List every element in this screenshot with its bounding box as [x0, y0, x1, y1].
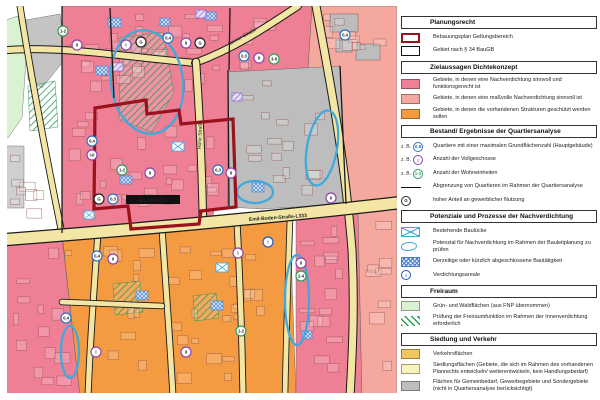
badge-grz-value: 0,4	[63, 316, 69, 321]
badge-floors-value: I	[95, 350, 96, 355]
badge-grz-value: 0,3	[241, 54, 247, 59]
badge-floors-value: II	[112, 257, 114, 262]
legend-item-label: Anzahl der Wohneinheiten	[431, 170, 497, 177]
legend-item-label: Prüfung der Freiraumfunktion im Rahmen d…	[431, 314, 597, 328]
swatch-badge-grz: 0,8	[413, 142, 423, 152]
legend-section-header: Planungsrecht	[401, 16, 597, 29]
swatch-xrect	[401, 227, 420, 237]
legend-swatch-cell	[401, 46, 431, 56]
legend-section-header: Potenziale und Prozesse der Nachverdicht…	[401, 210, 597, 223]
zoning-map: Hauptstraße Berner Straße Hohe Straße Em…	[0, 0, 397, 400]
legend-swatch-cell	[401, 349, 431, 359]
badge-commercial-value: G	[198, 41, 201, 46]
swatch-badge-units: 1-2	[413, 169, 423, 179]
swatch-zone_protect	[401, 109, 420, 119]
legend-swatch-cell	[401, 257, 431, 267]
legend-item: Ghoher Anteil an gewerblicher Nutzung	[401, 195, 597, 206]
example-prefix: z. B.	[401, 144, 411, 150]
legend-item: Bestehende Baulücke	[401, 226, 597, 237]
badge-floors-value: II	[330, 196, 332, 201]
swatch-badge-floors: I	[413, 155, 423, 165]
legend-item-label: Verkehrsflächen	[431, 351, 472, 358]
legend-item: z. B.0,8Quartiere mit einer maximalen Gr…	[401, 141, 597, 152]
legend-swatch-cell	[401, 33, 431, 43]
badge-floors-value: II	[149, 171, 151, 176]
plan-document: Hauptstraße Berner Straße Hohe Straße Em…	[0, 0, 600, 400]
legend-swatch-cell	[401, 227, 431, 237]
swatch-traffic	[401, 349, 420, 359]
swatch-line	[401, 187, 421, 188]
badge-units-value: 3-6	[271, 57, 278, 62]
legend-item-label: Gebiete, in denen eine Nachverdichtung s…	[431, 77, 597, 91]
legend-item: Gebiete, in denen eine maßvolle Nachverd…	[401, 93, 597, 104]
legend-swatch-cell: !	[401, 270, 431, 280]
legend-item: Flächen für Gemeinbedarf, Gewerbegebiete…	[401, 379, 597, 393]
legend-item: Derzeitige oder kürzlich abgeschlossene …	[401, 256, 597, 267]
street-banner-label: Hauptstraße	[138, 198, 168, 204]
legend-item: Gebiete, in denen die vorhandenen Strukt…	[401, 107, 597, 121]
legend-item-label: Verdichtungsareale	[431, 272, 480, 279]
legend-item: Potenzial für Nachverdichtung im Rahmen …	[401, 240, 597, 254]
legend-swatch-cell	[401, 187, 431, 188]
legend-item: Gebiete, in denen eine Nachverdichtung s…	[401, 77, 597, 91]
legend-item-label: Bestehende Baulücke	[431, 228, 487, 235]
legend-swatch-cell	[401, 381, 431, 391]
legend-swatch-cell	[401, 242, 431, 251]
swatch-zone_moderate	[401, 94, 420, 104]
legend-section-header: Zielaussagen Dichtekonzept	[401, 61, 597, 74]
legend-item-label: Abgrenzung von Quartieren im Rahmen der …	[431, 183, 583, 190]
legend-item: Prüfung der Freiraumfunktion im Rahmen d…	[401, 314, 597, 328]
legend-item-label: Anzahl der Vollgeschosse	[431, 156, 496, 163]
swatch-zone_strong	[401, 79, 420, 89]
legend-swatch-cell: G	[401, 196, 431, 206]
swatch-par34	[401, 46, 420, 56]
example-prefix: z. B.	[401, 171, 411, 177]
swatch-hatchblue	[401, 257, 420, 267]
legend-swatch-cell: z. B.0,8	[401, 142, 431, 152]
legend-item-label: Flächen für Gemeinbedarf, Gewerbegebiete…	[431, 379, 597, 393]
legend-item-label: Gebiete, in denen eine maßvolle Nachverd…	[431, 95, 582, 102]
badge-units-value: 2-4	[298, 274, 305, 279]
badge-floors-value: I-II	[90, 153, 95, 158]
example-prefix: z. B.	[401, 157, 411, 163]
legend-swatch-cell	[401, 364, 431, 374]
legend-swatch-cell	[401, 301, 431, 311]
badge-floors-value: II	[300, 261, 302, 266]
badge-floors-value: II	[258, 56, 260, 61]
legend-section-header: Bestand/ Ergebnisse der Quartiersanalyse	[401, 125, 597, 138]
legend-item-label: Derzeitige oder kürzlich abgeschlossene …	[431, 258, 562, 265]
swatch-hatchgreen	[401, 316, 420, 326]
badge-floors-value: II	[76, 43, 78, 48]
swatch-green	[401, 301, 420, 311]
swatch-special	[401, 381, 420, 391]
badge-grz-value: 0,3	[215, 168, 221, 173]
badge-units-value: 1-2	[238, 329, 245, 334]
legend-item-label: Potenzial für Nachverdichtung im Rahmen …	[431, 240, 597, 254]
legend-item-label: Gebiete, in denen die vorhandenen Strukt…	[431, 107, 597, 121]
badge-commercial-value: G	[97, 197, 100, 202]
badge-floors-value: I	[125, 43, 126, 48]
swatch-badge-alert: !	[401, 270, 411, 280]
legend-item-label: Gebiet nach § 34 BauGB	[431, 47, 494, 54]
legend-item: Bebauungsplan Geltungsbereich	[401, 32, 597, 43]
legend-swatch-cell	[401, 79, 431, 89]
legend-panel: PlanungsrechtBebauungsplan Geltungsberei…	[401, 12, 597, 396]
badge-grz-value: 0,4	[165, 36, 171, 41]
badge-grz-value: 0,3	[110, 197, 116, 202]
legend-item: z. B.IAnzahl der Vollgeschosse	[401, 155, 597, 166]
badge-floors-value: I	[237, 251, 238, 256]
legend-section-header: Freiraum	[401, 285, 597, 298]
street-label-vertical: Hohe Straße	[197, 120, 204, 149]
swatch-blob	[401, 242, 417, 251]
legend-item-label: Grün- und Waldflächen (aus FNP übernomme…	[431, 303, 550, 310]
legend-swatch-cell	[401, 94, 431, 104]
badge-units-value: 1-2	[60, 29, 67, 34]
legend-item: Siedlungsflächen (Gebiete, die sich im R…	[401, 362, 597, 376]
swatch-settlement	[401, 364, 420, 374]
legend-swatch-cell	[401, 109, 431, 119]
legend-swatch-cell	[401, 316, 431, 326]
badge-grz-value: 0,4	[94, 254, 100, 259]
legend-item: Abgrenzung von Quartieren im Rahmen der …	[401, 182, 597, 193]
legend-item: z. B.1-2Anzahl der Wohneinheiten	[401, 168, 597, 179]
legend-item: !Verdichtungsareale	[401, 270, 597, 281]
swatch-bplan	[401, 33, 420, 43]
badge-units-value: 1-2	[119, 168, 126, 173]
badge-grz-value: 0,4	[89, 139, 95, 144]
legend-item: Grün- und Waldflächen (aus FNP übernomme…	[401, 301, 597, 312]
legend-section-header: Siedlung und Verkehr	[401, 333, 597, 346]
legend-swatch-cell: z. B.1-2	[401, 169, 431, 179]
legend-item: Gebiet nach § 34 BauGB	[401, 46, 597, 57]
legend-item: Verkehrsflächen	[401, 349, 597, 360]
badge-alert-value: !	[267, 240, 268, 245]
badge-floors-value: II	[185, 41, 187, 46]
badge-floors-value: II	[230, 171, 232, 176]
legend-swatch-cell: z. B.I	[401, 155, 431, 165]
badge-commercial-value: G	[139, 40, 142, 45]
legend-item-label: Quartiere mit einer maximalen Grundfläch…	[431, 143, 593, 150]
legend-item-label: hoher Anteil an gewerblicher Nutzung	[431, 197, 524, 204]
badge-grz-value: 0,4	[342, 33, 348, 38]
legend-item-label: Siedlungsflächen (Gebiete, die sich im R…	[431, 362, 597, 376]
badge-floors-value: II	[185, 350, 187, 355]
swatch-badge-commercial: G	[401, 196, 411, 206]
legend-item-label: Bebauungsplan Geltungsbereich	[431, 34, 513, 41]
